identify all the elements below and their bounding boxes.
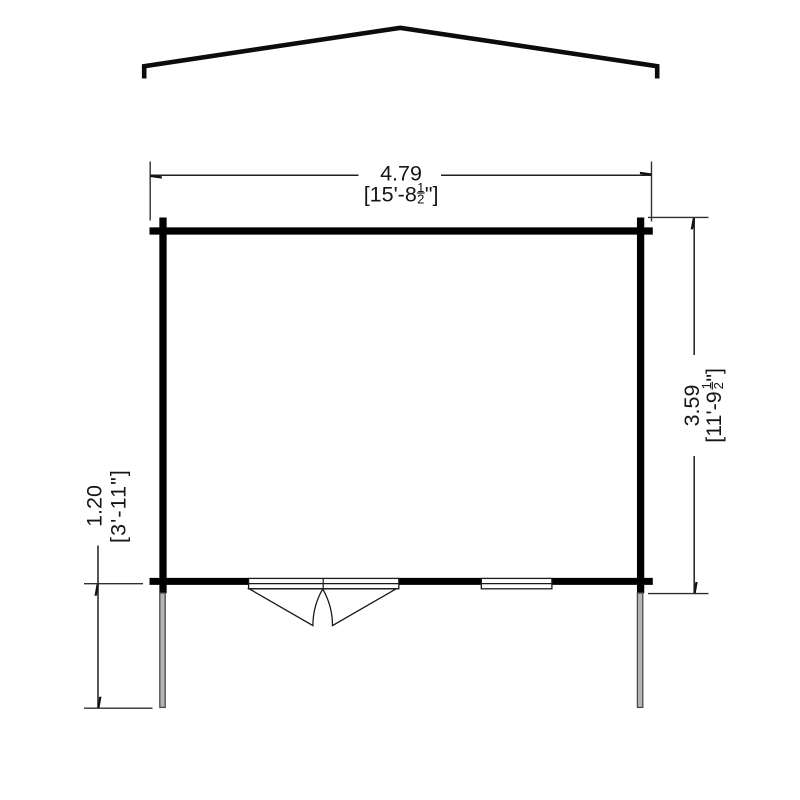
svg-text:3.59: 3.59: [680, 385, 704, 427]
svg-text:[11'-9: [11'-9: [702, 391, 726, 443]
svg-text:"]: "]: [425, 183, 439, 207]
svg-text:1.20: 1.20: [82, 485, 106, 527]
svg-text:2: 2: [417, 192, 424, 207]
svg-text:[15'-8: [15'-8: [364, 183, 417, 207]
svg-text:2: 2: [711, 382, 726, 389]
svg-text:[3'-11"]: [3'-11"]: [107, 469, 131, 543]
svg-text:"]: "]: [702, 368, 726, 382]
